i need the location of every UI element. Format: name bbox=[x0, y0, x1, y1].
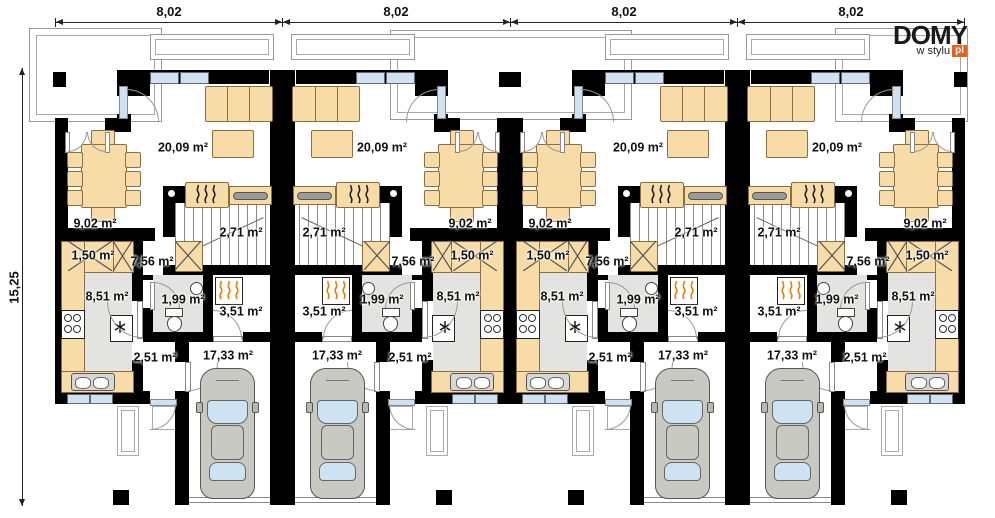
sofa bbox=[660, 86, 728, 122]
wall bbox=[295, 332, 322, 342]
chair bbox=[125, 152, 141, 168]
kitchen-sink bbox=[71, 373, 115, 391]
party-wall bbox=[737, 70, 750, 505]
wall bbox=[412, 308, 422, 332]
chair bbox=[482, 171, 498, 187]
chair bbox=[424, 171, 440, 187]
hall-label: 7,56 m² bbox=[846, 255, 890, 268]
window bbox=[635, 72, 664, 84]
garage-label: 17,33 m² bbox=[203, 349, 253, 362]
dining-label: 9,02 m² bbox=[528, 217, 571, 230]
utility-label: 3,51 m² bbox=[757, 305, 801, 318]
chair bbox=[67, 190, 83, 206]
vestibule-label: 2,51 m² bbox=[133, 351, 177, 364]
wardrobe-label: 1,50 m² bbox=[905, 249, 949, 262]
wall bbox=[845, 203, 857, 237]
building: 20,09 m² 9,02 m² 1,50 m² 7,56 m² 2,71 m²… bbox=[0, 0, 995, 518]
living-room-label: 20,09 m² bbox=[613, 141, 663, 154]
porch-pillar bbox=[508, 72, 521, 87]
chair bbox=[125, 171, 141, 187]
car bbox=[765, 368, 820, 499]
x-brace-icon bbox=[175, 241, 201, 270]
dining-table bbox=[893, 144, 939, 208]
chair bbox=[580, 152, 596, 168]
entrance-door-arc bbox=[861, 89, 894, 122]
living-room-label: 20,09 m² bbox=[357, 141, 407, 154]
wall bbox=[867, 308, 877, 332]
planter-inner bbox=[576, 410, 590, 452]
hall-label: 7,56 m² bbox=[585, 255, 629, 268]
fireplace-flames-icon bbox=[346, 184, 372, 204]
chair bbox=[522, 152, 538, 168]
window bbox=[386, 72, 415, 84]
kitchen-sink bbox=[526, 373, 570, 391]
sofa bbox=[292, 86, 360, 122]
window bbox=[522, 394, 545, 404]
window bbox=[930, 394, 953, 404]
front-wall bbox=[587, 391, 605, 404]
planter-inner bbox=[430, 410, 444, 452]
chair bbox=[879, 171, 895, 187]
party-wall bbox=[270, 70, 283, 505]
wall bbox=[618, 203, 630, 237]
chair bbox=[937, 171, 953, 187]
car bbox=[200, 368, 255, 499]
upper-window-box-inner bbox=[155, 39, 269, 55]
boiler-flames-icon bbox=[671, 280, 697, 300]
window bbox=[180, 72, 209, 84]
wc-label: 1,99 m² bbox=[616, 293, 660, 306]
chair bbox=[424, 152, 440, 168]
living-room-label: 20,09 m² bbox=[158, 141, 208, 154]
chair bbox=[580, 171, 596, 187]
window bbox=[475, 394, 498, 404]
wc-label: 1,99 m² bbox=[360, 293, 404, 306]
car bbox=[655, 368, 710, 499]
unit-1: 20,09 m² 9,02 m² 1,50 m² 7,56 m² 2,71 m²… bbox=[55, 60, 283, 510]
boiler-flames-icon bbox=[216, 280, 242, 300]
planter-inner bbox=[121, 410, 135, 452]
chair bbox=[482, 152, 498, 168]
window bbox=[67, 394, 90, 404]
fireplace-insert-dot bbox=[623, 190, 630, 197]
front-wall bbox=[630, 391, 644, 405]
utility-label: 3,51 m² bbox=[302, 305, 346, 318]
window bbox=[811, 72, 840, 84]
kitchen-label: 8,51 m² bbox=[85, 290, 129, 303]
wardrobe-label: 1,50 m² bbox=[526, 249, 570, 262]
vestibule-label: 2,51 m² bbox=[588, 351, 632, 364]
dining-label: 9,02 m² bbox=[903, 217, 946, 230]
x-brace-icon bbox=[630, 241, 656, 270]
stairs-label: 2,71 m² bbox=[219, 226, 263, 239]
kitchen-sink bbox=[450, 373, 494, 391]
front-wall bbox=[132, 391, 150, 404]
stairs-label: 2,71 m² bbox=[757, 226, 801, 239]
upper-window-box-inner bbox=[751, 39, 865, 55]
porch-pillar bbox=[53, 72, 66, 87]
chair bbox=[67, 152, 83, 168]
unit-3: 20,09 m² 9,02 m² 1,50 m² 7,56 m² 2,71 m²… bbox=[510, 60, 738, 510]
coffee-table bbox=[212, 130, 254, 158]
garage-wall bbox=[630, 392, 644, 505]
chair bbox=[879, 152, 895, 168]
coffee-table bbox=[311, 130, 353, 158]
wall bbox=[143, 308, 153, 332]
garage-wall bbox=[175, 392, 189, 505]
fireplace-insert-dot bbox=[390, 190, 397, 197]
cooktop bbox=[480, 310, 504, 339]
chair bbox=[67, 171, 83, 187]
coffee-table bbox=[766, 130, 808, 158]
upper-window-box-inner bbox=[296, 39, 410, 55]
kitchen-label: 8,51 m² bbox=[436, 290, 480, 303]
fireplace-insert-dot bbox=[168, 190, 175, 197]
planter-inner bbox=[885, 410, 899, 452]
fireplace-flames-icon bbox=[193, 184, 219, 204]
wall bbox=[698, 332, 725, 342]
entrance-door-arc bbox=[581, 89, 614, 122]
tv bbox=[688, 192, 723, 200]
chair bbox=[125, 190, 141, 206]
dining-label: 9,02 m² bbox=[73, 217, 116, 230]
vestibule-label: 2,51 m² bbox=[843, 351, 887, 364]
front-pillar bbox=[891, 490, 907, 505]
window bbox=[356, 72, 385, 84]
living-room-label: 20,09 m² bbox=[812, 141, 862, 154]
chair bbox=[937, 152, 953, 168]
wall bbox=[867, 275, 877, 280]
garage-wall bbox=[831, 392, 845, 505]
wall bbox=[243, 332, 270, 342]
window bbox=[605, 72, 634, 84]
wc-label: 1,99 m² bbox=[161, 293, 205, 306]
party-wall bbox=[282, 70, 295, 505]
sofa bbox=[747, 86, 815, 122]
wardrobe-label: 1,50 m² bbox=[450, 249, 494, 262]
utility-label: 3,51 m² bbox=[219, 305, 263, 318]
wall bbox=[750, 332, 777, 342]
stairs-label: 2,71 m² bbox=[674, 226, 718, 239]
window bbox=[841, 72, 870, 84]
wardrobe-label: 1,50 m² bbox=[71, 249, 115, 262]
kitchen-label: 8,51 m² bbox=[891, 290, 935, 303]
entrance-door-arc bbox=[406, 89, 439, 122]
chair bbox=[522, 190, 538, 206]
boiler-flames-icon bbox=[323, 280, 349, 300]
window bbox=[452, 394, 475, 404]
dining-table bbox=[536, 144, 582, 208]
x-brace-icon bbox=[364, 241, 390, 270]
coffee-table bbox=[667, 130, 709, 158]
cooktop bbox=[61, 310, 85, 339]
window bbox=[545, 394, 568, 404]
front-pillar bbox=[436, 490, 452, 505]
chair bbox=[879, 190, 895, 206]
tv bbox=[233, 192, 268, 200]
garage-label: 17,33 m² bbox=[767, 349, 817, 362]
wall bbox=[598, 275, 608, 280]
unit-4: 20,09 m² 9,02 m² 1,50 m² 7,56 m² 2,71 m²… bbox=[737, 60, 965, 510]
utility-label: 3,51 m² bbox=[674, 305, 718, 318]
dining-table bbox=[81, 144, 127, 208]
chair bbox=[937, 190, 953, 206]
fireplace-insert-dot bbox=[845, 190, 852, 197]
hall-label: 7,56 m² bbox=[391, 255, 435, 268]
boiler-flames-icon bbox=[778, 280, 804, 300]
unit-2: 20,09 m² 9,02 m² 1,50 m² 7,56 m² 2,71 m²… bbox=[282, 60, 510, 510]
garage-wall bbox=[630, 332, 644, 362]
party-wall bbox=[725, 70, 738, 505]
front-pillar bbox=[113, 490, 129, 505]
wall bbox=[163, 203, 175, 237]
wall bbox=[412, 275, 422, 280]
hall-label: 7,56 m² bbox=[130, 255, 174, 268]
vestibule-label: 2,51 m² bbox=[388, 351, 432, 364]
cooktop bbox=[935, 310, 959, 339]
wall bbox=[143, 275, 153, 280]
front-wall bbox=[175, 391, 189, 405]
window bbox=[90, 394, 113, 404]
wall bbox=[390, 203, 402, 237]
wc-label: 1,99 m² bbox=[815, 293, 859, 306]
window bbox=[150, 72, 179, 84]
cooktop bbox=[516, 310, 540, 339]
upper-window-box-inner bbox=[610, 39, 724, 55]
fireplace-flames-icon bbox=[801, 184, 827, 204]
garage-label: 17,33 m² bbox=[312, 349, 362, 362]
kitchen-sink bbox=[905, 373, 949, 391]
dining-table bbox=[438, 144, 484, 208]
fireplace-flames-icon bbox=[648, 184, 674, 204]
porch-pillar bbox=[954, 72, 967, 87]
floor-plan-canvas: 8,02 8,02 8,02 8,02 15,25 DOMY w stylu p… bbox=[0, 0, 995, 518]
tv bbox=[752, 192, 787, 200]
garage-label: 17,33 m² bbox=[658, 349, 708, 362]
x-brace-icon bbox=[819, 241, 845, 270]
kitchen-label: 8,51 m² bbox=[540, 290, 584, 303]
chair bbox=[522, 171, 538, 187]
stairs-label: 2,71 m² bbox=[302, 226, 346, 239]
garage-wall bbox=[376, 392, 390, 505]
window bbox=[907, 394, 930, 404]
chair bbox=[580, 190, 596, 206]
dining-label: 9,02 m² bbox=[448, 217, 491, 230]
entrance-door-arc bbox=[126, 89, 159, 122]
garage-wall bbox=[175, 332, 189, 362]
wall bbox=[598, 308, 608, 332]
front-pillar bbox=[568, 490, 584, 505]
tv bbox=[297, 192, 332, 200]
chair bbox=[424, 190, 440, 206]
sofa bbox=[205, 86, 273, 122]
chair bbox=[482, 190, 498, 206]
car bbox=[310, 368, 365, 499]
